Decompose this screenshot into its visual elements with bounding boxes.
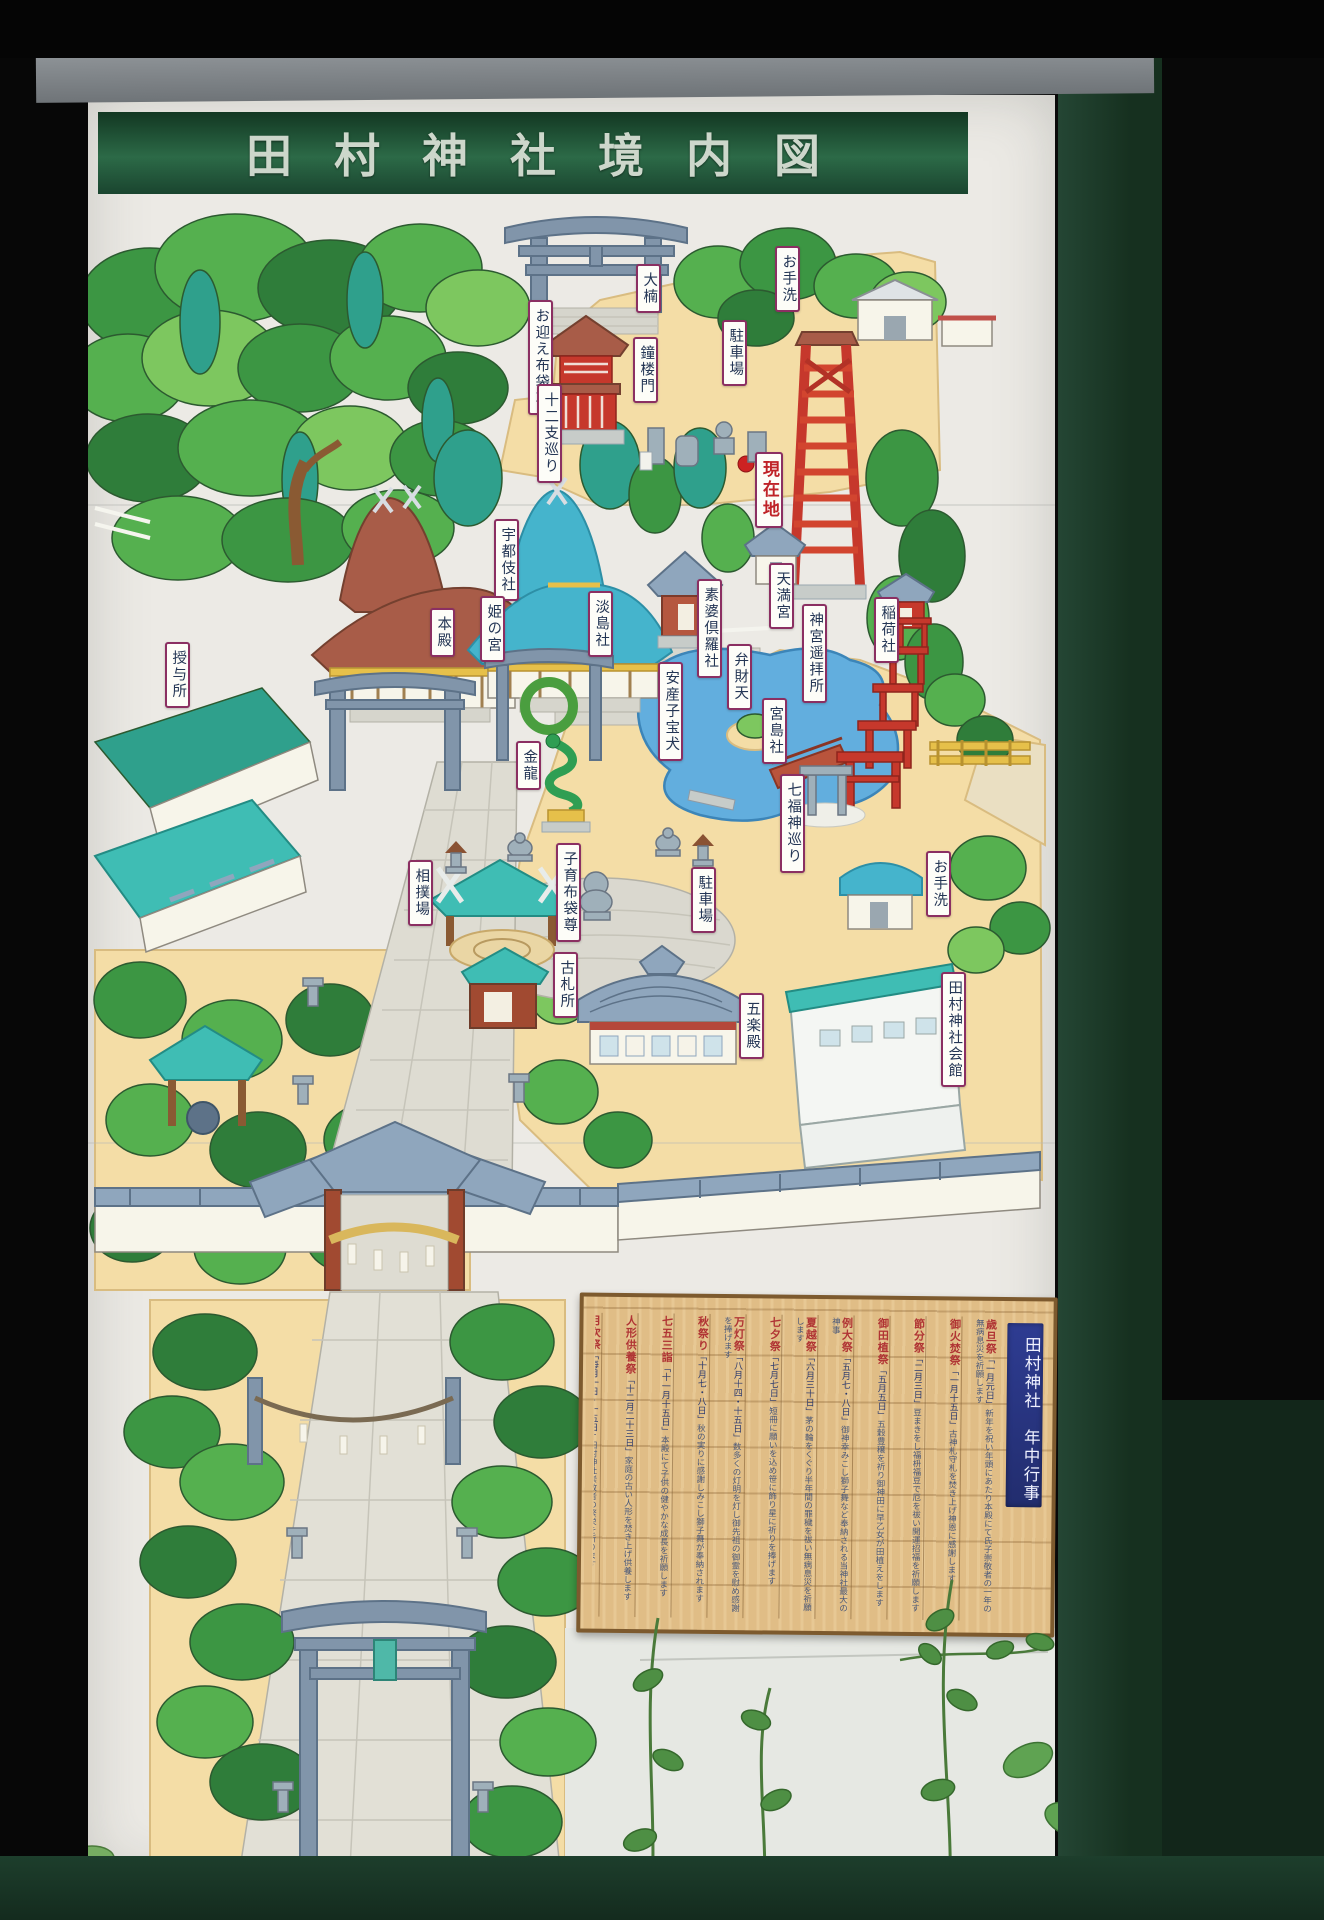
event-column-1: 歳旦祭「一月元日」新年を祝い年頭にあたり本殿にて氏子崇敬者の一年の無病息災を祈願… — [958, 1317, 997, 1621]
map-label-benzaiten: 弁財天 — [727, 644, 752, 710]
restroom-east-building — [840, 863, 922, 929]
map-label-gorakuden: 五楽殿 — [739, 993, 764, 1059]
map-label-shoromon: 鐘楼門 — [633, 337, 658, 403]
map-label-hime-no-miya: 姫の宮 — [480, 596, 505, 662]
map-label-chushajo-center: 駐車場 — [691, 867, 716, 933]
map-label-kofudasho: 古札所 — [553, 952, 578, 1018]
juyosho-buildings — [95, 688, 318, 952]
event-column-3: 節分祭「二月三日」豆まきをし福枡福豆で厄を祓い開運招福を祈願します — [886, 1316, 925, 1620]
events-columns: 歳旦祭「一月元日」新年を祝い年頭にあたり本殿にて氏子崇敬者の一年の無病息災を祈願… — [592, 1313, 997, 1621]
frame-bottom-green — [0, 1856, 1324, 1920]
events-board-title: 田村神社 年中行事 — [1006, 1323, 1044, 1507]
event-column-10: 七五三詣「十一月十五日」本殿にて子供の健やかな成長を祈願します — [634, 1313, 673, 1617]
event-column-5: 例大祭「五月七・八日」御神幸みこし獅子舞など奉納される当神社最大の神事 — [814, 1315, 853, 1619]
frame-right-green-post — [1058, 0, 1162, 1920]
map-label-otearai-north: お手洗 — [775, 246, 800, 312]
map-label-subakura-sha: 素婆倶羅社 — [697, 579, 722, 678]
frame-left — [0, 0, 88, 1920]
event-column-6: 夏越祭「六月三十日」茅の輪をくぐり半年間の罪穢を祓い無病息災を祈願します — [778, 1315, 817, 1619]
kosodate-hotei-statue — [580, 872, 612, 920]
map-label-anzan-kodakara-inu: 安産子宝犬 — [658, 662, 683, 761]
event-column-4: 御田植祭「五月五日」五穀豊穣を祈り御神田に早乙女が田植えをします — [850, 1315, 889, 1619]
event-column-7: 七夕祭「七月七日」短冊に願いを込め笹に飾り星に祈りを捧げます — [742, 1314, 781, 1618]
photo-of-shrine-map-sign: 田村神社境内図 大楠お手洗駐車場鐘楼門お迎え布袋尊十二支巡り現在地宇都伎社姫の宮… — [0, 0, 1324, 1920]
map-label-jingu-yohaisho: 神宮遥拝所 — [802, 604, 827, 703]
map-label-awashima-sha: 淡島社 — [588, 591, 613, 657]
frame-right-bottom-foliage — [1162, 1400, 1324, 1920]
map-label-kosodate-hoteison: 子育布袋尊 — [556, 843, 581, 942]
forest-northwest — [70, 214, 530, 582]
map-label-sumo-ba: 相撲場 — [408, 860, 433, 926]
map-label-junishi-meguri: 十二支巡り — [537, 384, 562, 483]
map-label-kinryu: 金龍 — [516, 741, 541, 790]
map-label-genzaichi: 現在地 — [755, 452, 783, 528]
map-label-utsuki-sha: 宇都伎社 — [494, 519, 519, 601]
sign-title: 田村神社境内図 — [98, 112, 968, 194]
annual-events-board: 田村神社 年中行事 歳旦祭「一月元日」新年を祝い年頭にあたり本殿にて氏子崇敬者の… — [576, 1293, 1058, 1638]
event-column-8: 万灯祭「八月十四・十五日」数多くの灯明を灯し御先祖の御霊を慰め感謝を捧げます — [706, 1314, 745, 1618]
map-label-otearai-east: お手洗 — [926, 851, 951, 917]
frame-top — [0, 0, 1324, 58]
event-column-9: 秋祭り「十月七・八日」秋の実りに感謝しみこし獅子舞が奉納されます — [670, 1313, 709, 1617]
map-label-honden: 本殿 — [430, 608, 455, 657]
map-label-shichifukujin-meguri: 七福神巡り — [780, 774, 805, 873]
event-column-11: 人形供養祭「十二月二十三日」家庭の古い人形を焚き上げ供養します — [598, 1313, 637, 1617]
map-label-juyosho: 授与所 — [165, 642, 190, 708]
map-label-tenmangu: 天満宮 — [769, 563, 794, 629]
map-label-inari-sha: 稲荷社 — [874, 597, 899, 663]
map-label-tamura-jinja-kaikan: 田村神社会館 — [941, 972, 966, 1087]
map-label-miyajima-sha: 宮島社 — [762, 698, 787, 764]
map-label-okusu: 大楠 — [636, 264, 661, 313]
kaikan-building — [786, 964, 965, 1168]
map-label-chushajo-north: 駐車場 — [722, 320, 747, 386]
event-column-2: 御火焚祭「一月十五日」古神札守札を焚き上げ神恩に感謝します — [922, 1316, 961, 1620]
